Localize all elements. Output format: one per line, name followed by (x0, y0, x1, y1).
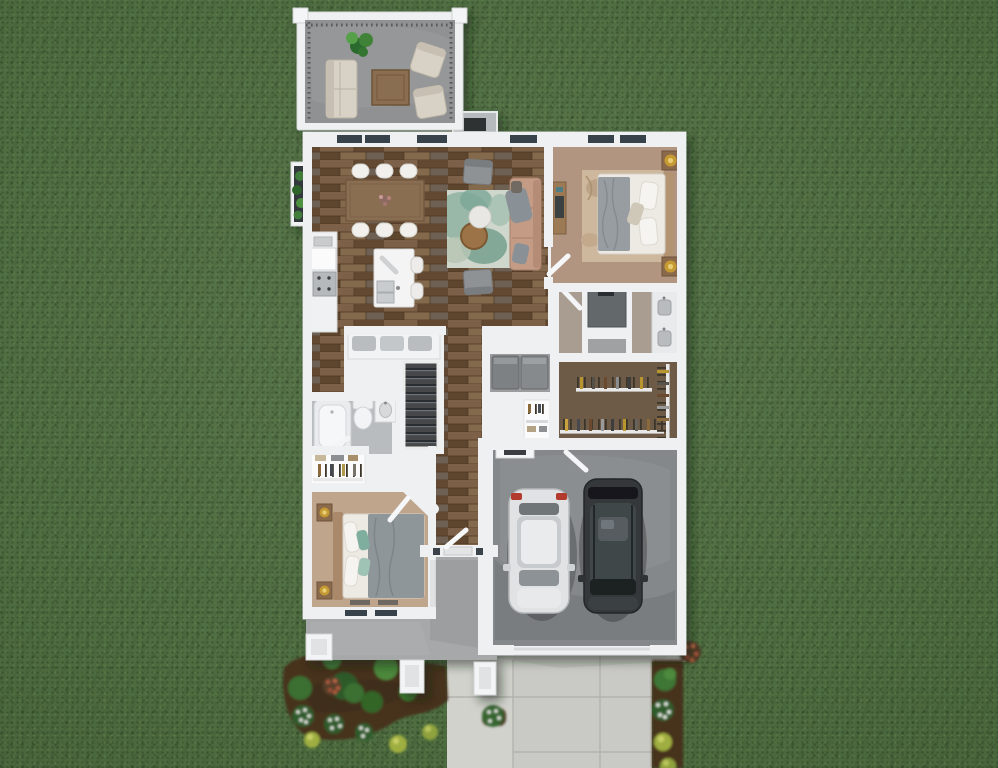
range (313, 272, 336, 296)
floor-plan-svg (0, 0, 998, 768)
laundry-block (482, 326, 558, 448)
coral-flowers-left (323, 677, 341, 695)
outdoor-loveseat (326, 60, 357, 118)
deck (293, 8, 467, 130)
sidelight-left (433, 548, 440, 555)
master-nightstand-top (662, 151, 679, 170)
hall-bath-vanity (375, 398, 396, 422)
white-flowers-right (652, 699, 674, 721)
sidelight-right (476, 548, 483, 555)
floor-vent-1 (350, 600, 370, 605)
dryer (521, 356, 548, 389)
bedroom2-nightstand-top (317, 504, 332, 521)
white-car (503, 489, 577, 621)
hall-bench (348, 334, 440, 359)
kitchen-island (374, 249, 414, 307)
bedroom-2 (311, 487, 428, 608)
patio-coffee-table (372, 70, 409, 105)
bedroom2-bed (333, 512, 424, 600)
kitchen-wall-counter (311, 232, 337, 332)
master-bed (598, 172, 674, 256)
master-vanity (652, 289, 678, 357)
living-sofa (504, 178, 541, 270)
round-ottoman (469, 206, 491, 228)
taillight-left (511, 493, 522, 500)
house (291, 8, 686, 695)
garage (492, 442, 678, 646)
washer (492, 356, 519, 389)
master-bath-closet-block (551, 283, 686, 453)
floor-vent-2 (378, 600, 398, 605)
dining-table (346, 180, 424, 221)
dark-suv (578, 478, 648, 622)
stairs (404, 362, 438, 448)
refrigerator (311, 248, 336, 270)
master-nightstand-bottom (662, 257, 679, 276)
accent-chair-top (463, 159, 493, 185)
accent-chair-bottom (463, 269, 493, 295)
patio-chair-2 (413, 85, 448, 120)
toilet-hall-bath (353, 400, 373, 429)
master-media-console (553, 182, 566, 234)
taillight-right (556, 493, 567, 500)
bedroom2-nightstand-bottom (317, 582, 332, 599)
walk-in-closet (558, 362, 678, 446)
flower-bed-right (652, 641, 701, 768)
island-sink (377, 281, 394, 292)
shrub-right-highlight (664, 668, 676, 680)
hall-closet-shelves (524, 400, 550, 440)
floor-plan-render (0, 0, 998, 768)
